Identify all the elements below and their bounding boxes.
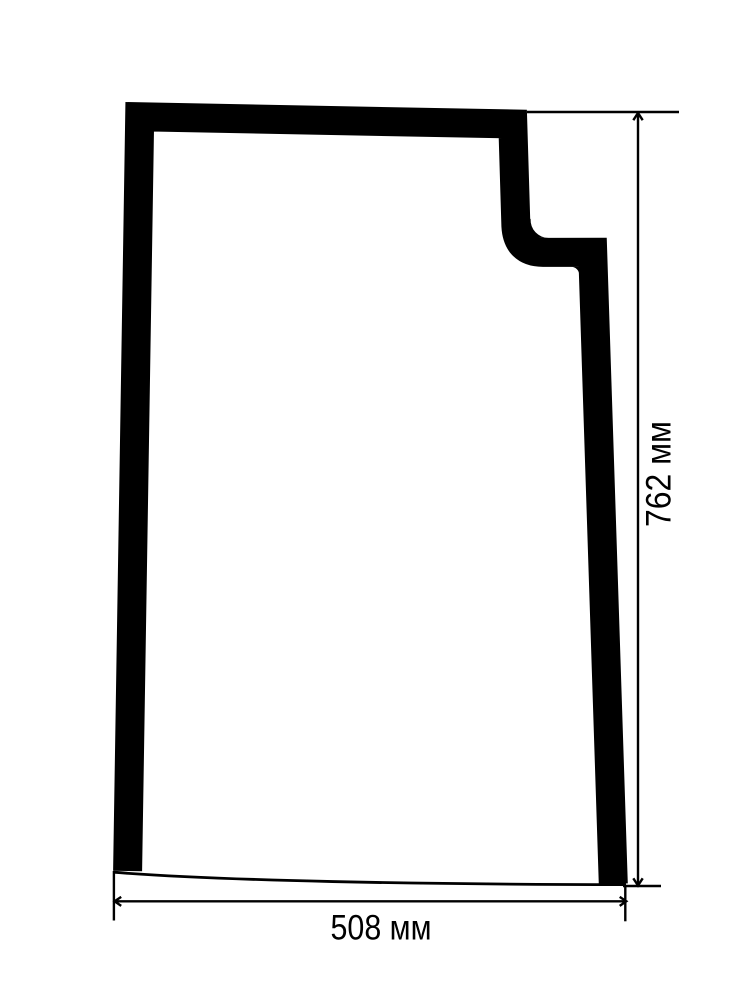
svg-text:762 мм: 762 мм — [640, 421, 679, 527]
svg-text:508 мм: 508 мм — [331, 908, 432, 947]
